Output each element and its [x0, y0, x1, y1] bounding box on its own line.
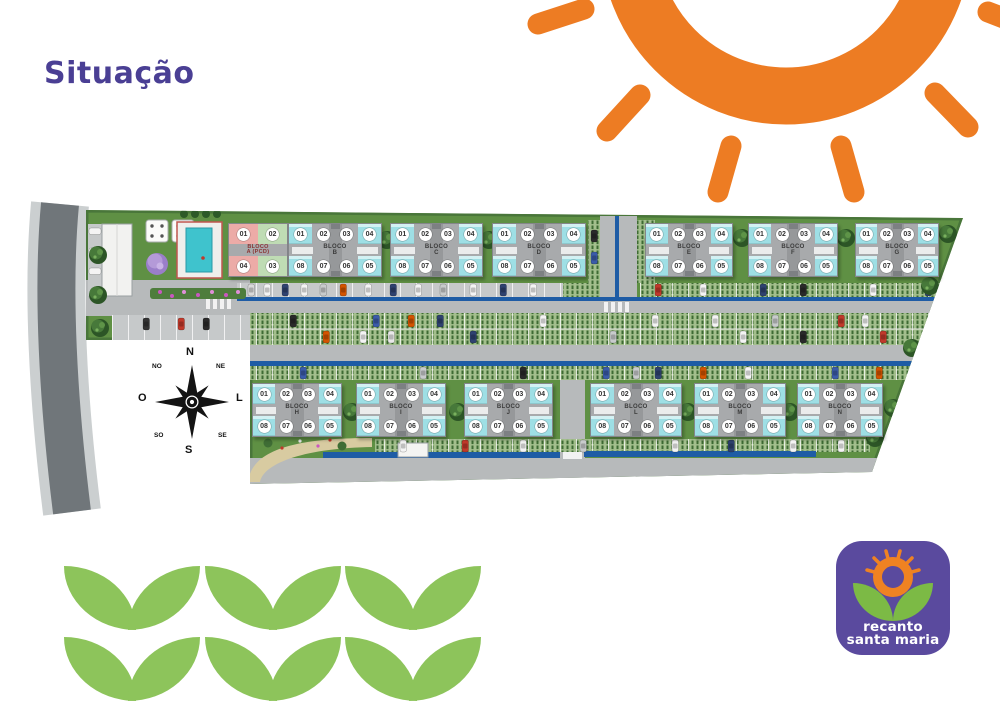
block-label: BLOCOG: [856, 244, 938, 256]
unit-number: 07: [280, 420, 293, 433]
unit-cell: 07: [312, 256, 335, 276]
block-D: 01020304BLOCOD08070605: [492, 223, 586, 277]
unit-cell: 08: [646, 256, 668, 276]
block-label: BLOCON: [798, 404, 882, 416]
block-M: 01020304BLOCOM08070605: [694, 383, 786, 437]
unit-cell: 06: [297, 416, 319, 436]
compass-label-ne: NE: [216, 363, 225, 370]
unit-cell: 04: [319, 384, 341, 404]
unit-number: 07: [521, 260, 534, 273]
unit-number: 06: [901, 260, 914, 273]
unit-number: 02: [672, 228, 685, 241]
unit-number: 04: [324, 388, 337, 401]
block-N: 01020304BLOCON08070605: [797, 383, 883, 437]
unit-number: 01: [596, 388, 609, 401]
unit-cell: 03: [689, 224, 711, 244]
unit-number: 01: [237, 228, 250, 241]
unit-cell: 06: [335, 256, 358, 276]
unit-cell: 05: [659, 416, 682, 436]
block-label: BLOCOF: [749, 244, 837, 256]
unit-cell: 04: [562, 224, 585, 244]
unit-cell: 02: [312, 224, 335, 244]
unit-number: 03: [693, 228, 706, 241]
unit-cell: 03: [740, 384, 763, 404]
unit-cell: 06: [689, 256, 711, 276]
unit-cell: 05: [423, 416, 445, 436]
unit-number: 01: [469, 388, 482, 401]
unit-cell: 02: [819, 384, 840, 404]
unit-number: 03: [641, 388, 654, 401]
unit-number: 04: [237, 260, 250, 273]
unit-cell: 01: [646, 224, 668, 244]
unit-number: 01: [700, 388, 713, 401]
unit-cell: 03: [897, 224, 918, 244]
block-C: 01020304BLOCOC08070605: [390, 223, 483, 277]
unit-cell: 03: [636, 384, 659, 404]
unit-number: 03: [544, 228, 557, 241]
block-L: 01020304BLOCOL08070605: [590, 383, 682, 437]
unit-cell: 04: [763, 384, 786, 404]
block-J: 01020304BLOCOJ08070605: [464, 383, 553, 437]
unit-number: 07: [823, 420, 836, 433]
unit-number: 03: [513, 388, 526, 401]
unit-number: 06: [641, 420, 654, 433]
unit-number: 01: [396, 228, 409, 241]
unit-number: 04: [767, 388, 780, 401]
unit-cell: 02: [379, 384, 401, 404]
unit-number: 04: [921, 228, 934, 241]
unit-number: 08: [469, 420, 482, 433]
unit-cell: 05: [763, 416, 786, 436]
unit-cell: 07: [771, 256, 793, 276]
unit-number: 06: [798, 260, 811, 273]
unit-number: 05: [428, 420, 441, 433]
leaf-pair: [64, 566, 200, 630]
unit-cell: 04: [861, 384, 882, 404]
block-label: BLOCOC: [391, 244, 482, 256]
unit-number: 06: [544, 260, 557, 273]
unit-cell: 02: [668, 224, 690, 244]
unit-cell: 05: [711, 256, 733, 276]
unit-number: 08: [596, 420, 609, 433]
unit-number: 07: [880, 260, 893, 273]
block-G: 01020304BLOCOG08070605: [855, 223, 939, 277]
unit-number: 03: [745, 388, 758, 401]
unit-cell: 01: [465, 384, 487, 404]
unit-number: 08: [754, 260, 767, 273]
unit-number: 04: [535, 388, 548, 401]
block-B: 01020304BLOCOB08070605: [288, 223, 382, 277]
unit-number: 08: [700, 420, 713, 433]
block-label: BLOCOJ: [465, 404, 552, 416]
unit-cell: 08: [253, 416, 275, 436]
unit-number: 02: [280, 388, 293, 401]
block-label: BLOCOL: [591, 404, 681, 416]
unit-number: 07: [618, 420, 631, 433]
unit-number: 01: [498, 228, 511, 241]
unit-number: 06: [693, 260, 706, 273]
unit-cell: 05: [562, 256, 585, 276]
unit-cell: 01: [253, 384, 275, 404]
unit-cell: 01: [229, 224, 258, 244]
compass-label-o: O: [138, 392, 147, 404]
compass-label-l: L: [236, 392, 243, 404]
unit-cell: 02: [718, 384, 741, 404]
unit-number: 02: [776, 228, 789, 241]
unit-number: 05: [464, 260, 477, 273]
street: [56, 204, 72, 512]
leaf-pair: [205, 566, 341, 630]
unit-number: 08: [294, 260, 307, 273]
unit-cell: 02: [771, 224, 793, 244]
unit-cell: 03: [539, 224, 562, 244]
unit-cell: 06: [401, 416, 423, 436]
unit-number: 05: [535, 420, 548, 433]
compass-label-no: NO: [152, 363, 162, 370]
unit-cell: 03: [840, 384, 861, 404]
unit-cell: 04: [918, 224, 939, 244]
unit-number: 08: [860, 260, 873, 273]
unit-cell: 07: [614, 416, 637, 436]
unit-number: 07: [317, 260, 330, 273]
unit-number: 02: [823, 388, 836, 401]
unit-cell: 07: [819, 416, 840, 436]
unit-cell: 02: [258, 224, 287, 244]
unit-cell: 03: [401, 384, 423, 404]
unit-number: 05: [324, 420, 337, 433]
block-label: BLOCOA (PCD): [229, 244, 287, 256]
unit-number: 01: [362, 388, 375, 401]
unit-number: 03: [798, 228, 811, 241]
unit-cell: 06: [793, 256, 815, 276]
block-F: 01020304BLOCOF08070605: [748, 223, 838, 277]
unit-number: 06: [406, 420, 419, 433]
unit-number: 04: [428, 388, 441, 401]
unit-cell: 08: [391, 256, 414, 276]
unit-cell: 08: [695, 416, 718, 436]
unit-cell: 03: [437, 224, 460, 244]
unit-cell: 04: [229, 256, 258, 276]
unit-cell: 07: [877, 256, 898, 276]
unit-cell: 05: [530, 416, 552, 436]
unit-number: 01: [754, 228, 767, 241]
unit-number: 06: [441, 260, 454, 273]
unit-number: 02: [722, 388, 735, 401]
leaf-pair: [345, 566, 481, 630]
unit-number: 08: [802, 420, 815, 433]
unit-number: 06: [340, 260, 353, 273]
unit-cell: 07: [668, 256, 690, 276]
unit-number: 01: [294, 228, 307, 241]
block-label: BLOCOB: [289, 244, 381, 256]
unit-number: 07: [672, 260, 685, 273]
compass-label-n: N: [186, 346, 194, 358]
unit-cell: 01: [695, 384, 718, 404]
unit-cell: 08: [856, 256, 877, 276]
unit-cell: 08: [357, 416, 379, 436]
block-label: BLOCOM: [695, 404, 785, 416]
unit-cell: 07: [487, 416, 509, 436]
unit-cell: 07: [414, 256, 437, 276]
compass-rose: N NE L SE S SO O NO: [140, 350, 244, 460]
unit-cell: 06: [437, 256, 460, 276]
unit-number: 08: [396, 260, 409, 273]
block-label: BLOCOD: [493, 244, 585, 256]
unit-number: 05: [715, 260, 728, 273]
unit-number: 07: [776, 260, 789, 273]
flower-bed: [150, 288, 246, 299]
unit-cell: 03: [509, 384, 531, 404]
logo-wordmark: recanto santa maria: [836, 621, 950, 647]
unit-cell: 05: [861, 416, 882, 436]
unit-cell: 04: [358, 224, 381, 244]
unit-cell: 05: [815, 256, 837, 276]
unit-cell: 02: [414, 224, 437, 244]
pool: [186, 228, 212, 272]
unit-cell: 01: [798, 384, 819, 404]
unit-cell: 04: [711, 224, 733, 244]
unit-number: 02: [880, 228, 893, 241]
unit-number: 05: [363, 260, 376, 273]
unit-number: 03: [406, 388, 419, 401]
leaf-pair: [205, 637, 341, 701]
unit-number: 02: [384, 388, 397, 401]
unit-number: 03: [266, 260, 279, 273]
unit-cell: 04: [530, 384, 552, 404]
unit-number: 02: [521, 228, 534, 241]
unit-number: 04: [663, 388, 676, 401]
unit-cell: 01: [391, 224, 414, 244]
unit-number: 04: [820, 228, 833, 241]
unit-cell: 04: [459, 224, 482, 244]
unit-cell: 04: [659, 384, 682, 404]
unit-number: 01: [802, 388, 815, 401]
compass-label-se: SE: [218, 432, 227, 439]
unit-cell: 01: [749, 224, 771, 244]
leaf-pair: [345, 637, 481, 701]
unit-cell: 01: [493, 224, 516, 244]
unit-number: 02: [491, 388, 504, 401]
unit-cell: 04: [423, 384, 445, 404]
unit-cell: 03: [793, 224, 815, 244]
site-plan: 0102BLOCOA (PCD)040301020304BLOCOB080706…: [0, 200, 1000, 520]
unit-number: 02: [419, 228, 432, 241]
unit-cell: 06: [509, 416, 531, 436]
unit-cell: 03: [258, 256, 287, 276]
unit-number: 07: [419, 260, 432, 273]
unit-cell: 01: [856, 224, 877, 244]
unit-cell: 02: [877, 224, 898, 244]
unit-cell: 06: [840, 416, 861, 436]
unit-number: 03: [441, 228, 454, 241]
unit-cell: 08: [798, 416, 819, 436]
unit-number: 03: [302, 388, 315, 401]
unit-number: 03: [340, 228, 353, 241]
unit-cell: 05: [918, 256, 939, 276]
unit-cell: 07: [718, 416, 741, 436]
unit-cell: 06: [897, 256, 918, 276]
unit-number: 05: [820, 260, 833, 273]
unit-cell: 06: [636, 416, 659, 436]
unit-number: 01: [860, 228, 873, 241]
unit-cell: 05: [459, 256, 482, 276]
unit-cell: 08: [465, 416, 487, 436]
compass-label-s: S: [185, 444, 192, 456]
block-A: 0102BLOCOA (PCD)0403: [228, 223, 288, 277]
unit-number: 05: [567, 260, 580, 273]
block-label: BLOCOE: [646, 244, 732, 256]
unit-cell: 08: [493, 256, 516, 276]
unit-number: 05: [767, 420, 780, 433]
unit-cell: 01: [357, 384, 379, 404]
unit-number: 05: [921, 260, 934, 273]
unit-number: 08: [258, 420, 271, 433]
unit-number: 04: [865, 388, 878, 401]
unit-cell: 02: [614, 384, 637, 404]
unit-number: 02: [317, 228, 330, 241]
unit-number: 04: [464, 228, 477, 241]
unit-number: 03: [901, 228, 914, 241]
unit-number: 06: [302, 420, 315, 433]
unit-number: 04: [363, 228, 376, 241]
unit-number: 02: [618, 388, 631, 401]
unit-cell: 07: [379, 416, 401, 436]
unit-number: 01: [258, 388, 271, 401]
unit-number: 07: [722, 420, 735, 433]
unit-number: 08: [650, 260, 663, 273]
unit-cell: 07: [275, 416, 297, 436]
block-label: BLOCOH: [253, 404, 341, 416]
block-E: 01020304BLOCOE08070605: [645, 223, 733, 277]
page-title: Situação: [44, 56, 194, 91]
unit-cell: 08: [749, 256, 771, 276]
unit-cell: 02: [516, 224, 539, 244]
compass-label-so: SO: [154, 432, 163, 439]
unit-number: 07: [384, 420, 397, 433]
block-I: 01020304BLOCOI08070605: [356, 383, 446, 437]
unit-number: 05: [663, 420, 676, 433]
unit-cell: 03: [335, 224, 358, 244]
unit-number: 04: [567, 228, 580, 241]
unit-cell: 08: [591, 416, 614, 436]
unit-number: 04: [715, 228, 728, 241]
unit-cell: 01: [289, 224, 312, 244]
unit-cell: 03: [297, 384, 319, 404]
brand-logo: recanto santa maria: [836, 541, 950, 655]
unit-cell: 08: [289, 256, 312, 276]
unit-number: 08: [498, 260, 511, 273]
unit-number: 03: [844, 388, 857, 401]
sun-icon: [0, 0, 1000, 215]
unit-cell: 04: [815, 224, 837, 244]
unit-cell: 06: [740, 416, 763, 436]
unit-cell: 07: [516, 256, 539, 276]
unit-cell: 02: [487, 384, 509, 404]
unit-number: 02: [266, 228, 279, 241]
unit-number: 08: [362, 420, 375, 433]
unit-cell: 05: [358, 256, 381, 276]
unit-cell: 02: [275, 384, 297, 404]
unit-number: 06: [513, 420, 526, 433]
unit-cell: 01: [591, 384, 614, 404]
unit-cell: 05: [319, 416, 341, 436]
unit-number: 06: [844, 420, 857, 433]
unit-number: 05: [865, 420, 878, 433]
block-H: 01020304BLOCOH08070605: [252, 383, 342, 437]
unit-number: 01: [650, 228, 663, 241]
block-label: BLOCOI: [357, 404, 445, 416]
leaf-pair: [64, 637, 200, 701]
unit-number: 06: [745, 420, 758, 433]
unit-cell: 06: [539, 256, 562, 276]
unit-number: 07: [491, 420, 504, 433]
